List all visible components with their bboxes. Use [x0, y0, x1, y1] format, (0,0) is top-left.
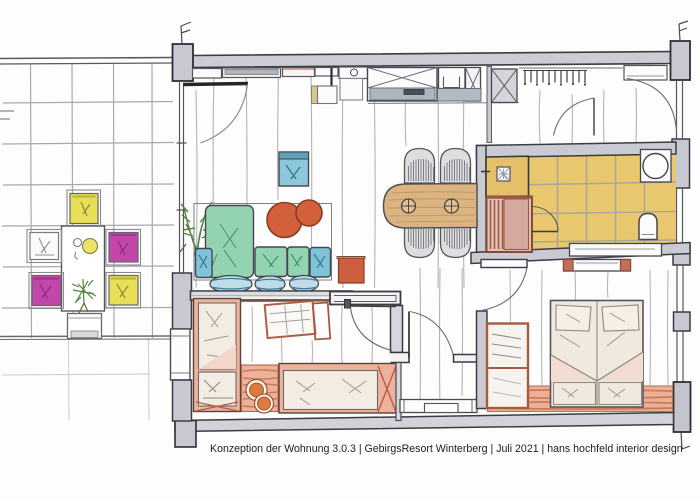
svg-text:Konzeption der Wohnung 3.0.3 |: Konzeption der Wohnung 3.0.3 | GebirgsRe… [210, 443, 683, 455]
